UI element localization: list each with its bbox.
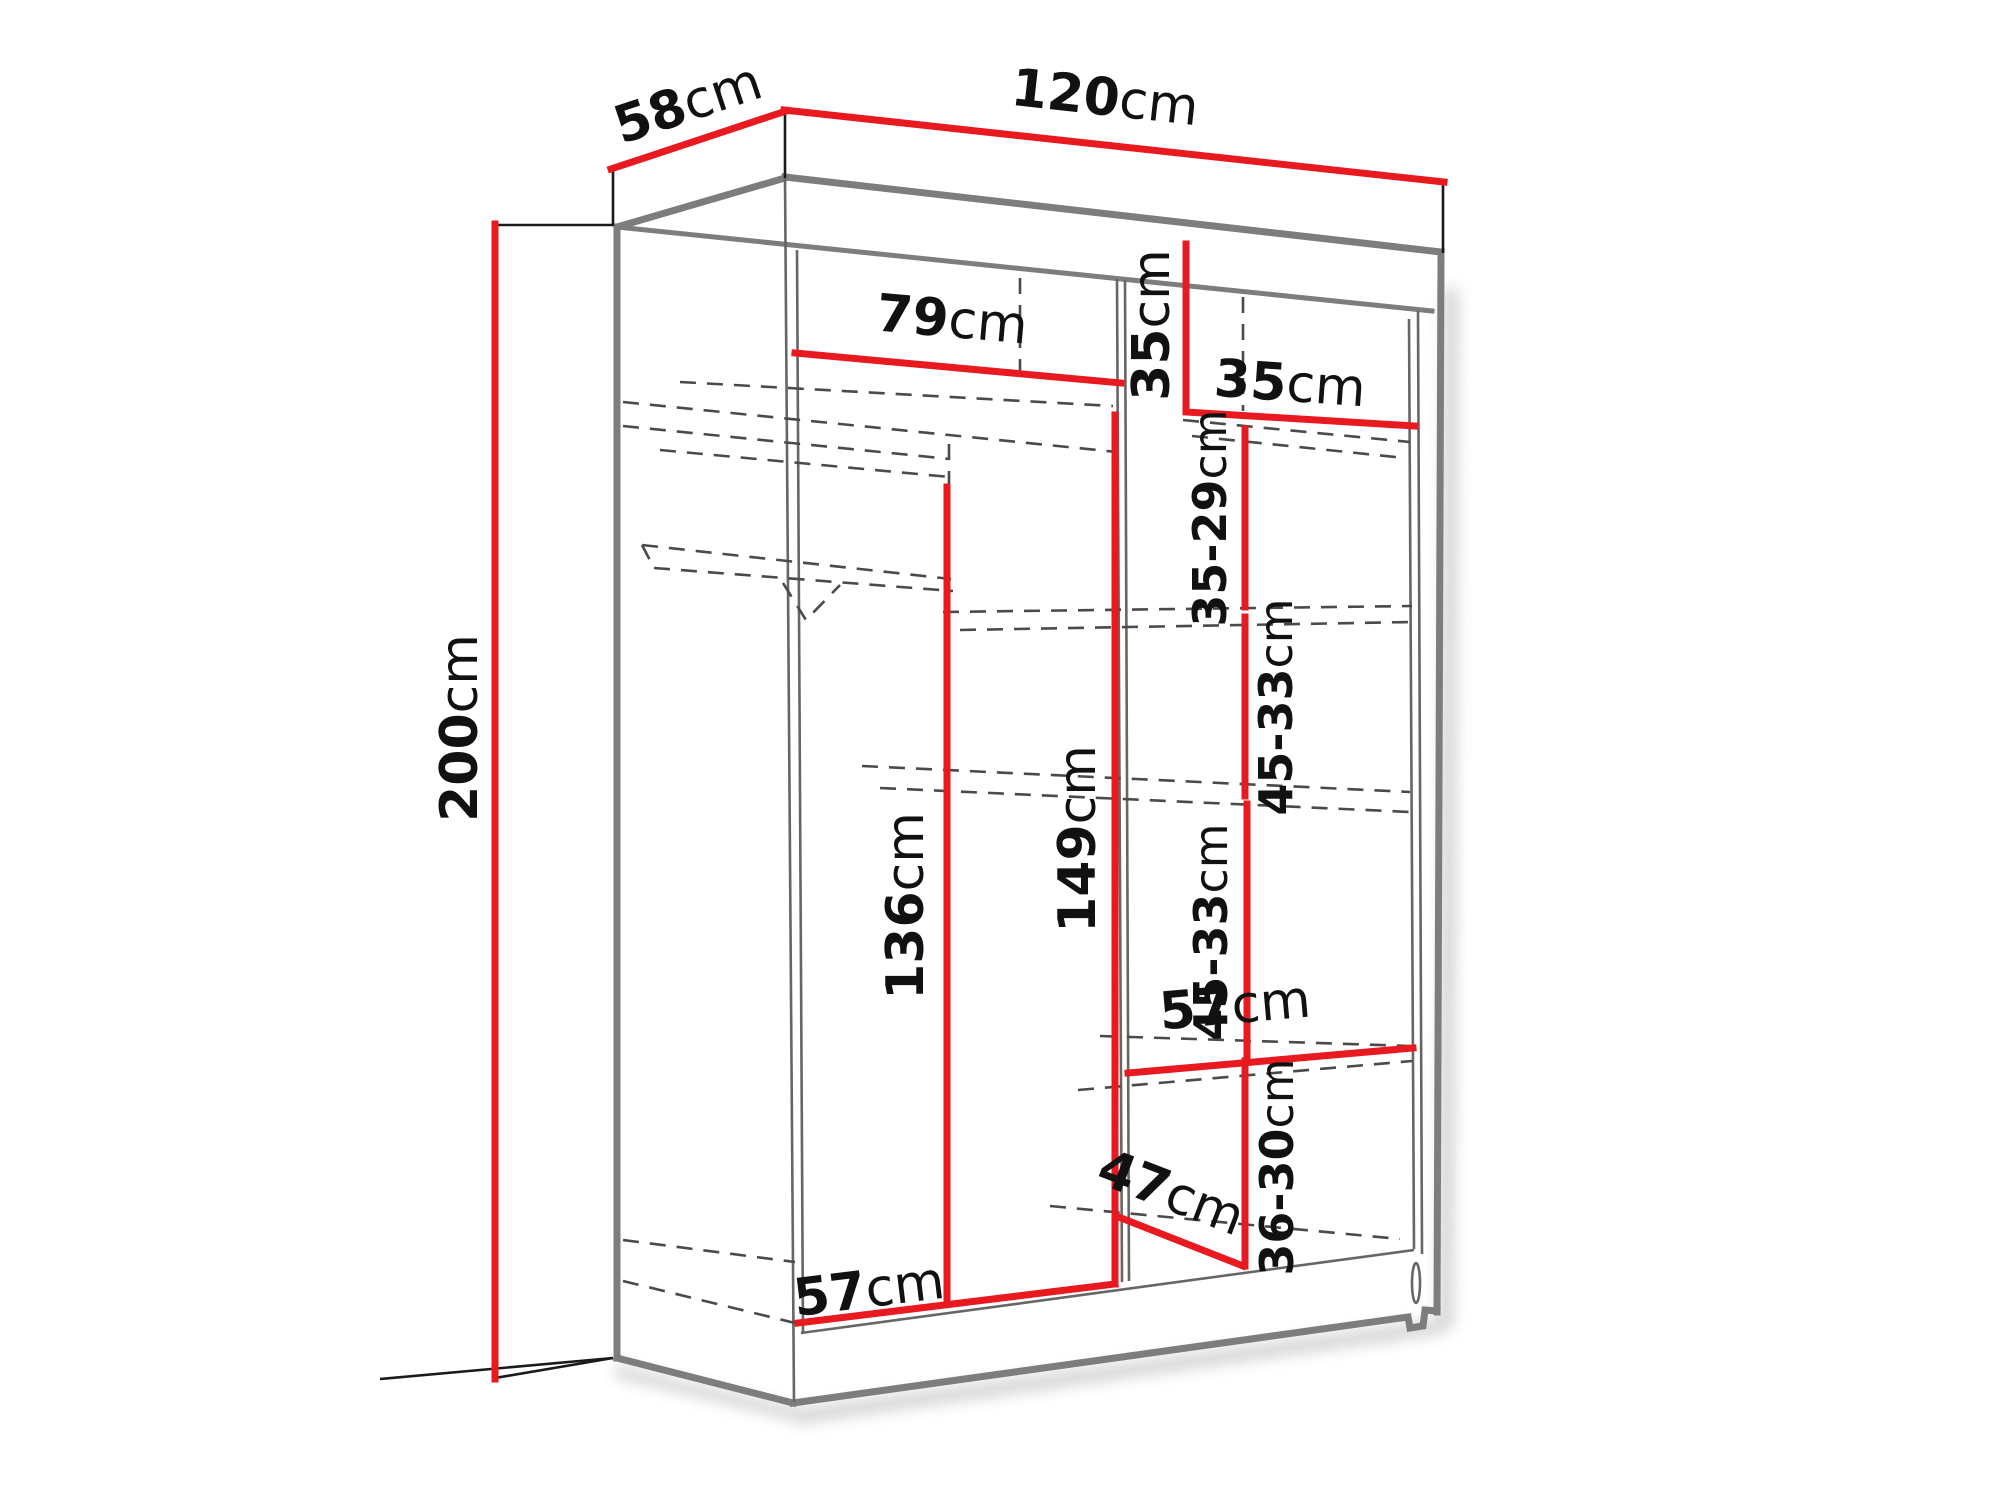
diagram-canvas: 58cm 120cm 200cm 79cm 35cm 35cm 136cm 14… (0, 0, 2000, 1500)
shelf-b-dash (943, 606, 1412, 612)
right-col-width-dim-label: 35cm (1212, 349, 1367, 419)
right-cubby-height-dim-label: 35cm (1122, 249, 1182, 401)
hanger-hook-dash (783, 583, 840, 620)
hanging-rod-dash (642, 545, 951, 579)
left-hang-height-dim-label: 136cm (876, 812, 936, 1000)
top-shelf-dash (623, 402, 1117, 452)
cabinet-foot (1412, 1263, 1420, 1303)
gap2-dim-label: 45-33cm (1249, 598, 1303, 815)
top-front-edge (785, 177, 1441, 252)
width-dim-label: 120cm (1008, 58, 1201, 138)
right-col-height-dim-label: 149cm (1048, 745, 1108, 933)
left-top-width-dim-line (795, 353, 1121, 383)
floor-left-dash (623, 1240, 795, 1262)
shelf-d-dash (1100, 1036, 1410, 1046)
hanging-rod-end-dash (642, 545, 654, 568)
height-dim-label: 200cm (430, 634, 490, 822)
hanging-rod-dash (654, 568, 953, 591)
shelf57-dim-label: 57cm (1157, 970, 1313, 1043)
gap4-dim-label: 36-30cm (1250, 1058, 1304, 1275)
wardrobe-dimension-diagram: 58cm 120cm 200cm 79cm 35cm 35cm 136cm 14… (0, 0, 2000, 1500)
front-left-stile-inner (797, 250, 803, 1333)
right-outer-edge (1437, 252, 1441, 1312)
floor-left-dash (623, 1281, 795, 1323)
top-left-edge (617, 178, 785, 227)
cabinet-shadow (620, 295, 1451, 1416)
right-wall-inner (1409, 319, 1414, 1249)
gap1-dim-label: 35-29cm (1183, 409, 1237, 626)
top-shelf-dash (680, 382, 1113, 406)
divider-front-edge-2 (1125, 280, 1129, 1281)
right-wall-inner-2 (1418, 311, 1422, 1254)
bottom-edge-with-plinth-notch (793, 1310, 1437, 1403)
front-left-stile-outer (785, 178, 794, 1402)
left-top-width-dim-label: 79cm (874, 284, 1030, 357)
dimension-labels: 58cm 120cm 200cm 79cm 35cm 35cm 136cm 14… (430, 51, 1368, 1329)
shelf-c-dash (880, 788, 1410, 812)
